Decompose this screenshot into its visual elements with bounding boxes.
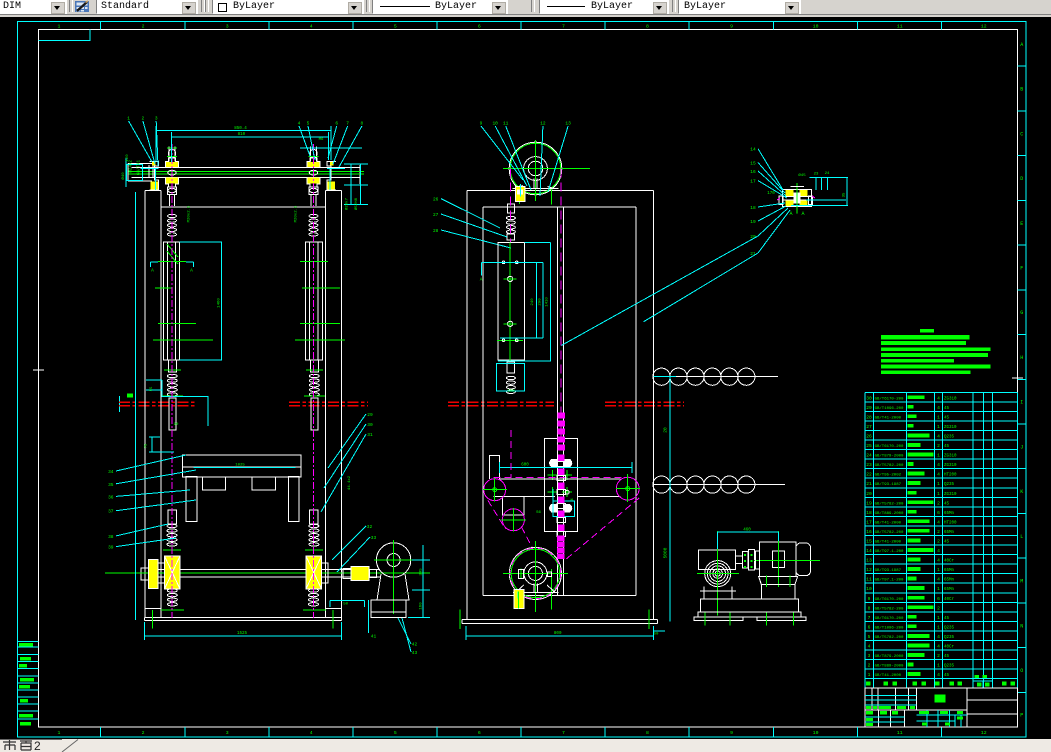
svg-text:4: 4: [937, 577, 940, 583]
svg-text:4: 4: [937, 634, 940, 640]
svg-text:A - A: A - A: [789, 211, 804, 217]
svg-text:Ø20k7: Ø20k7: [345, 197, 350, 210]
svg-text:A: A: [190, 268, 193, 274]
svg-text:GB/T5782-200: GB/T5782-200: [875, 606, 904, 611]
svg-text:850.4: 850.4: [234, 127, 247, 131]
svg-text:O: O: [1020, 668, 1023, 674]
svg-text:16: 16: [750, 169, 756, 175]
svg-text:1: 1: [937, 567, 940, 573]
svg-text:7: 7: [868, 615, 871, 621]
svg-text:GB/T1096-200: GB/T1096-200: [875, 625, 904, 630]
svg-text:2: 2: [937, 605, 940, 611]
svg-text:K: K: [1020, 489, 1023, 495]
svg-text:45: 45: [944, 416, 950, 420]
svg-text:ZG310: ZG310: [944, 464, 957, 468]
svg-text:GB/T889-2000: GB/T889-2000: [875, 664, 904, 669]
svg-text:10: 10: [813, 24, 819, 30]
svg-text:GB/T6170-200: GB/T6170-200: [875, 616, 904, 621]
svg-text:L: L: [1020, 534, 1023, 540]
svg-text:GB/T5782-200: GB/T5782-200: [875, 463, 904, 468]
svg-text:2: 2: [34, 739, 41, 752]
svg-text:4: 4: [937, 405, 940, 411]
svg-text:Ø52H8: Ø52H8: [354, 197, 359, 210]
svg-text:2: 2: [937, 653, 940, 659]
svg-text:19: 19: [750, 219, 756, 225]
svg-text:Q235: Q235: [944, 665, 955, 669]
svg-text:Ø40: Ø40: [121, 172, 126, 180]
svg-text:45: 45: [944, 540, 950, 544]
svg-text:810: 810: [238, 133, 246, 137]
svg-text:45: 45: [944, 655, 950, 659]
svg-text:GB/T1096-200: GB/T1096-200: [875, 406, 904, 411]
svg-text:GB/T879-2000: GB/T879-2000: [875, 454, 904, 459]
svg-text:65Mn: 65Mn: [944, 569, 955, 573]
svg-text:2: 2: [868, 663, 871, 669]
svg-text:1: 1: [937, 414, 940, 420]
svg-text:45: 45: [944, 674, 950, 678]
svg-text:9: 9: [480, 121, 483, 127]
svg-text:2: 2: [937, 529, 940, 535]
svg-text:11: 11: [897, 730, 903, 736]
svg-text:M24x2: M24x2: [130, 160, 134, 173]
svg-text:23: 23: [866, 462, 872, 468]
svg-text:A: A: [151, 268, 154, 274]
svg-text:4: 4: [937, 672, 940, 678]
svg-text:10: 10: [813, 730, 819, 736]
svg-text:4: 4: [298, 121, 301, 127]
svg-text:28: 28: [433, 228, 439, 234]
svg-text:HT200: HT200: [944, 521, 957, 525]
svg-text:15: 15: [866, 538, 872, 544]
svg-text:8: 8: [646, 24, 649, 30]
svg-text:26: 26: [433, 197, 439, 203]
svg-text:9: 9: [730, 24, 733, 30]
svg-text:14: 14: [750, 147, 756, 153]
svg-text:24: 24: [825, 172, 830, 176]
svg-text:45: 45: [944, 407, 950, 411]
svg-text:11: 11: [866, 577, 872, 583]
svg-text:65Mn: 65Mn: [944, 588, 955, 592]
svg-text:2: 2: [937, 538, 940, 544]
svg-text:43: 43: [412, 650, 418, 656]
svg-text:Ø45: Ø45: [798, 173, 806, 178]
svg-text:M20x2.5: M20x2.5: [188, 205, 192, 222]
svg-text:34: 34: [108, 469, 114, 475]
svg-text:5: 5: [307, 121, 310, 127]
svg-text:GB/T41: GB/T41: [137, 160, 142, 176]
svg-text:ZG310: ZG310: [944, 397, 957, 401]
svg-text:65Mn: 65Mn: [944, 531, 955, 535]
svg-text:11: 11: [503, 121, 509, 127]
svg-text:GB/T889-2000: GB/T889-2000: [875, 511, 904, 516]
svg-text:1: 1: [937, 491, 940, 497]
svg-text:E: E: [1020, 221, 1023, 227]
svg-text:14: 14: [866, 548, 872, 554]
svg-text:2: 2: [937, 443, 940, 449]
svg-text:12: 12: [540, 121, 546, 127]
svg-text:1: 1: [58, 24, 61, 30]
svg-text:7: 7: [562, 730, 565, 736]
svg-text:26: 26: [866, 433, 872, 439]
svg-text:M: M: [1020, 579, 1023, 585]
svg-text:240: 240: [531, 298, 535, 306]
svg-text:41: 41: [371, 634, 377, 640]
svg-text:A: A: [480, 277, 483, 283]
svg-text:40Cr: 40Cr: [944, 560, 955, 564]
svg-text:5: 5: [394, 730, 397, 736]
svg-text:16: 16: [866, 529, 872, 535]
svg-text:1: 1: [937, 624, 940, 630]
svg-text:2: 2: [937, 500, 940, 506]
svg-text:28: 28: [866, 414, 872, 420]
svg-text:6: 6: [937, 596, 940, 602]
svg-text:10: 10: [492, 121, 498, 127]
svg-text:5: 5: [394, 24, 397, 30]
svg-text:GB/T41-2000: GB/T41-2000: [875, 415, 902, 420]
svg-text:4: 4: [937, 395, 940, 401]
svg-text:160: 160: [420, 602, 424, 610]
svg-text:1: 1: [937, 481, 940, 487]
svg-text:30: 30: [866, 395, 872, 401]
svg-text:A: A: [1020, 42, 1023, 48]
svg-text:4: 4: [937, 548, 940, 554]
svg-text:290: 290: [538, 298, 542, 306]
svg-text:24: 24: [866, 453, 872, 459]
svg-text:1: 1: [868, 672, 871, 678]
svg-text:23: 23: [814, 173, 819, 177]
svg-text:35: 35: [108, 482, 114, 488]
svg-text:20: 20: [866, 491, 872, 497]
svg-text:9: 9: [730, 730, 733, 736]
svg-text:4: 4: [937, 433, 940, 439]
svg-text:HT200: HT200: [944, 474, 957, 478]
svg-text:4: 4: [937, 472, 940, 478]
svg-text:7: 7: [562, 24, 565, 30]
svg-text:9: 9: [868, 596, 871, 602]
svg-text:8: 8: [646, 730, 649, 736]
svg-text:21: 21: [866, 481, 872, 487]
svg-text:6: 6: [478, 24, 481, 30]
svg-text:P: P: [1020, 713, 1023, 719]
svg-text:460: 460: [743, 529, 751, 533]
svg-text:40Cr: 40Cr: [944, 598, 955, 602]
svg-text:2: 2: [142, 730, 145, 736]
svg-text:27: 27: [866, 424, 872, 430]
svg-text:33: 33: [371, 535, 377, 541]
svg-text:7: 7: [346, 121, 349, 127]
svg-text:M6: M6: [319, 138, 324, 142]
svg-text:GB/T93-1987: GB/T93-1987: [875, 568, 902, 573]
svg-text:75: 75: [145, 443, 149, 448]
svg-text:32: 32: [367, 524, 373, 530]
svg-text:4: 4: [868, 643, 871, 649]
svg-text:1025: 1025: [235, 463, 245, 467]
svg-text:13: 13: [565, 121, 571, 127]
svg-text:600: 600: [521, 464, 529, 468]
svg-text:4: 4: [937, 558, 940, 564]
svg-text:1: 1: [937, 586, 940, 592]
svg-text:Q235: Q235: [944, 636, 955, 640]
svg-text:800: 800: [554, 632, 562, 636]
svg-text:N: N: [1020, 623, 1023, 629]
svg-text:3: 3: [226, 24, 229, 30]
svg-text:GB/T6170-200: GB/T6170-200: [875, 597, 904, 602]
svg-text:G: G: [1020, 310, 1023, 316]
svg-text:GB/T5782-200: GB/T5782-200: [875, 530, 904, 535]
svg-text:M20x2.5: M20x2.5: [295, 205, 299, 222]
svg-text:13: 13: [866, 558, 872, 564]
svg-text:18: 18: [750, 205, 756, 211]
svg-text:3: 3: [868, 653, 871, 659]
svg-text:19: 19: [866, 500, 872, 506]
svg-text:6: 6: [937, 510, 940, 516]
svg-text:GB/T5782-200: GB/T5782-200: [875, 501, 904, 506]
svg-text:ZG310: ZG310: [944, 493, 957, 497]
svg-text:12: 12: [866, 567, 872, 573]
svg-text:35: 35: [843, 192, 847, 197]
svg-text:GB/T6170-200: GB/T6170-200: [875, 444, 904, 449]
svg-text:ZG310: ZG310: [944, 455, 957, 459]
svg-text:45: 45: [944, 617, 950, 621]
svg-text:15: 15: [750, 161, 756, 167]
svg-text:50: 50: [654, 633, 659, 637]
svg-text:1: 1: [127, 116, 130, 122]
svg-text:37: 37: [108, 509, 114, 515]
svg-text:50: 50: [343, 603, 348, 607]
svg-text:25: 25: [866, 443, 872, 449]
svg-text:5: 5: [868, 634, 871, 640]
svg-text:17: 17: [866, 519, 872, 525]
svg-text:S6: S6: [536, 511, 541, 515]
svg-text:GB/T97.1-200: GB/T97.1-200: [875, 578, 904, 583]
svg-text:2: 2: [142, 116, 145, 122]
svg-text:38: 38: [108, 534, 114, 540]
svg-text:12: 12: [981, 730, 987, 736]
svg-text:30: 30: [367, 422, 373, 428]
svg-text:I: I: [1020, 400, 1023, 406]
svg-text:GB/T97.1-200: GB/T97.1-200: [875, 549, 904, 554]
svg-text:GB/T879-2000: GB/T879-2000: [875, 654, 904, 659]
svg-text:GB/T41-2000: GB/T41-2000: [875, 520, 902, 525]
svg-text:H: H: [1020, 355, 1023, 361]
svg-text:1: 1: [937, 453, 940, 459]
svg-text:45: 45: [944, 502, 950, 506]
svg-text:44.4x2: 44.4x2: [348, 475, 352, 490]
svg-text:65Mn: 65Mn: [944, 579, 955, 583]
svg-text:1525: 1525: [237, 632, 248, 636]
svg-text:GB/T6170-200: GB/T6170-200: [875, 396, 904, 401]
svg-text:1460: 1460: [218, 298, 222, 308]
svg-text:3: 3: [226, 730, 229, 736]
svg-text:GB/T41-2000: GB/T41-2000: [875, 673, 902, 678]
svg-text:Q235: Q235: [944, 483, 955, 487]
svg-text:4: 4: [310, 730, 313, 736]
svg-text:4: 4: [937, 643, 940, 649]
svg-text:6: 6: [335, 121, 338, 127]
svg-text:6: 6: [868, 624, 871, 630]
svg-text:55: 55: [150, 386, 154, 391]
svg-text:4: 4: [937, 462, 940, 468]
svg-text:170: 170: [767, 192, 775, 196]
svg-text:6: 6: [478, 730, 481, 736]
svg-text:29: 29: [367, 412, 373, 418]
svg-text:1: 1: [58, 730, 61, 736]
svg-text:150: 150: [507, 390, 515, 394]
svg-text:Q235: Q235: [944, 626, 955, 630]
svg-text:45: 45: [944, 445, 950, 449]
svg-text:42: 42: [412, 642, 418, 648]
svg-text:36: 36: [108, 494, 114, 500]
svg-text:GB/T41-2000: GB/T41-2000: [875, 539, 902, 544]
svg-text:GB/T95-2002: GB/T95-2002: [875, 473, 902, 478]
svg-text:65Mn: 65Mn: [944, 512, 955, 516]
svg-text:31: 31: [367, 432, 373, 438]
svg-text:27: 27: [433, 212, 439, 218]
svg-text:120: 120: [126, 154, 130, 162]
svg-text:1410: 1410: [545, 297, 549, 307]
svg-text:C: C: [1020, 131, 1023, 137]
svg-text:D: D: [1020, 176, 1023, 182]
svg-text:ZG310: ZG310: [944, 426, 957, 430]
svg-text:3: 3: [155, 116, 158, 122]
svg-text:8: 8: [868, 605, 871, 611]
svg-text:12: 12: [981, 24, 987, 30]
svg-text:4: 4: [310, 24, 313, 30]
svg-text:39: 39: [108, 545, 114, 551]
svg-text:GB/T5782-200: GB/T5782-200: [875, 635, 904, 640]
svg-text:1: 1: [937, 424, 940, 430]
svg-text:4: 4: [937, 519, 940, 525]
svg-text:GB/T93-1987: GB/T93-1987: [875, 482, 902, 487]
svg-text:J: J: [1020, 444, 1023, 450]
svg-text:B: B: [1020, 87, 1023, 93]
svg-text:2: 2: [142, 24, 145, 30]
svg-text:11: 11: [897, 24, 903, 30]
svg-text:F: F: [1020, 266, 1023, 272]
svg-text:90: 90: [174, 423, 179, 427]
svg-text:40Cr: 40Cr: [944, 645, 955, 649]
svg-text:18: 18: [866, 510, 872, 516]
svg-text:345: 345: [420, 568, 424, 576]
svg-text:22: 22: [866, 472, 872, 478]
svg-text:17: 17: [750, 179, 756, 185]
svg-text:29: 29: [866, 405, 872, 411]
svg-text:Q235: Q235: [944, 435, 955, 439]
svg-text:1: 1: [937, 615, 940, 621]
svg-text:8: 8: [361, 121, 364, 127]
svg-text:20: 20: [663, 427, 669, 433]
svg-text:10: 10: [866, 586, 872, 592]
svg-text:5000: 5000: [663, 547, 669, 558]
svg-text:1: 1: [937, 663, 940, 669]
